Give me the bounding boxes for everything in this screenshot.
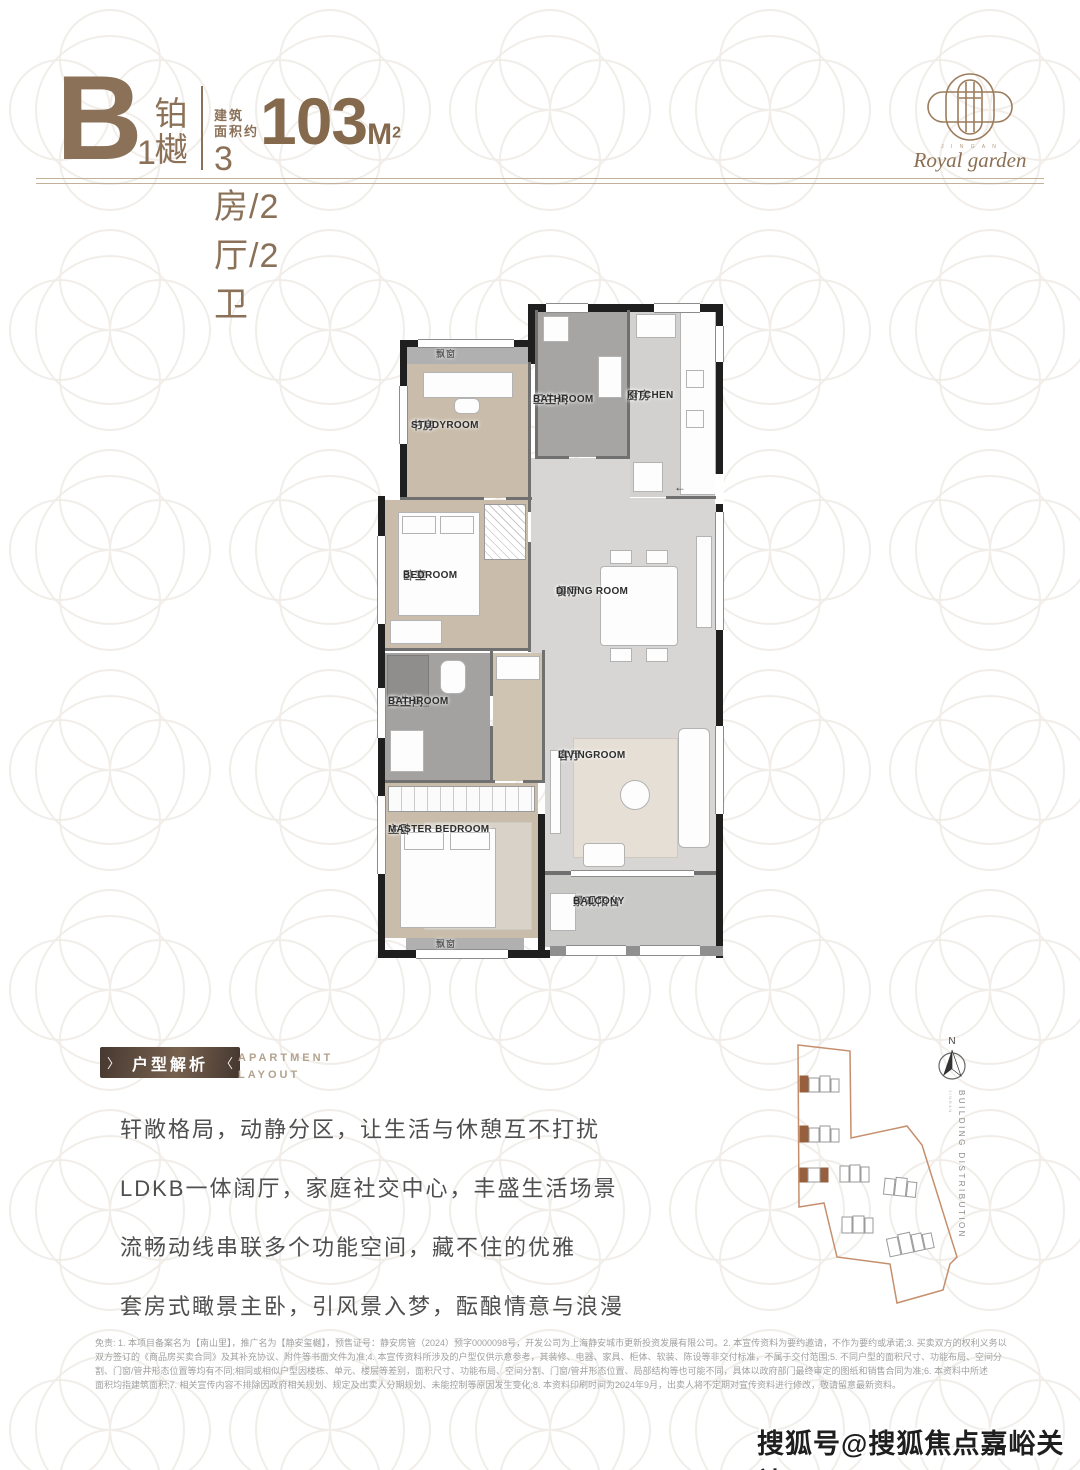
disclaimer: 免责: 1. 本项目备案名为【南山里】，推广名为【静安玺樾】，预售证号：静安房管… [95,1336,1007,1392]
wall-segment [538,814,545,954]
window [418,339,514,348]
corridor-cabinet [496,656,540,680]
brand-logo: J I N G A N Royal garden [880,68,1060,176]
bedroom-wardrobe [484,504,526,560]
wall-segment [627,310,630,458]
fridge [633,462,663,492]
section-badge: 〉 户型解析 〈 [100,1047,240,1078]
unit-type-name-char2: 樾 [153,132,189,168]
window [377,796,386,874]
window [377,688,386,738]
coffee-table [620,780,650,810]
area-caption-line1: 建筑 [214,108,260,124]
area-figure: 103M2 [260,90,401,153]
building-cluster [883,1176,917,1197]
study-bay-window [407,346,528,364]
wall-segment [490,726,493,783]
wall-segment [385,780,495,783]
stove-icon [686,370,704,388]
disclaimer-line: 面积均指建筑面积;7. 相关宣传内容不排除因政府相关规划、规定及出卖人分期规划、… [95,1378,1007,1392]
unit-type-name: 铂 樾 [153,96,189,169]
window [715,726,724,814]
wall-segment [528,362,531,500]
study-desk [423,372,513,398]
window [640,945,700,956]
paragraph-line: LDKB一体阔厅，家庭社交中心，丰盛生活场景 [120,1171,624,1203]
wall-segment [385,648,531,651]
sofa [678,728,710,848]
section-subtitle: APARTMENT LAYOUT [238,1050,333,1083]
map-axis-label: BUILDING DISTRIBUTION [957,1090,966,1239]
disclaimer-line: 双方签订的《商品房买卖合同》及其补充协议、附件等书面文件为准;4. 本宣传资料所… [95,1350,1007,1364]
building-cluster [840,1165,869,1182]
building-distribution-map: N BUILDING DISTRIBUTION JINGAN [772,1032,1012,1322]
wall-segment [535,310,538,458]
wall-segment [694,871,716,875]
kitchen-counter [680,311,716,495]
wall-segment [666,496,716,499]
window [377,536,386,624]
logo-quatrefoil-horizontal [928,92,1012,122]
north-arrow-icon: N [939,1036,965,1079]
area-caption: 建筑 面积约 [214,108,260,141]
wall-segment [490,650,493,696]
dining-chair [646,648,668,662]
paragraph-line: 套房式瞰景主卧，引风景入梦，酝酿情意与浪漫 [120,1289,624,1321]
logo-script-text: Royal garden [913,148,1027,172]
sideboard [696,536,712,628]
badge-chevron-left-icon: 〉 [107,1053,120,1072]
room-spec: 3房/2厅/2卫 [214,140,279,326]
wall-segment [528,500,531,512]
entry-arrow-icon: ← [674,480,686,494]
logo-window-icon [958,80,982,134]
window [566,945,626,956]
window [715,512,724,630]
wall-segment [400,497,484,500]
hallway-floor [530,458,630,498]
north-label: N [948,1036,955,1047]
sliding-door [571,870,694,877]
wall-segment [545,871,571,875]
badge-chevron-right-icon: 〈 [220,1053,233,1072]
bed-pillow [440,516,474,534]
building-cluster [842,1216,873,1233]
building-cluster [800,1076,839,1092]
section-subtitle-line2: LAYOUT [238,1067,333,1084]
floor-plan: ← 飘窗 书房STUDYROOM 卫生间BATHROOM 厨房KITCHEN 卧… [378,298,723,958]
window [546,303,588,313]
window [416,949,508,959]
dining-chair [610,550,632,564]
window [654,303,700,313]
wall-segment [528,542,531,652]
bed-pillow [402,516,436,534]
entry-door-opening [715,474,724,504]
map-axis-sublabel: JINGAN [948,1090,953,1114]
building-cluster [800,1168,828,1182]
bath1-vanity [598,356,622,398]
bedroom-desk [390,620,442,644]
bath2-sink [390,730,424,772]
disclaimer-line: 免责: 1. 本项目备案名为【南山里】，推广名为【静安玺樾】，预售证号：静安房管… [95,1336,1007,1350]
wall-segment [716,304,723,958]
area-unit: M [367,118,392,151]
wall-segment [542,650,545,783]
header-rule [36,178,1044,184]
area-unit-sup: 2 [392,125,401,142]
logo-quatrefoil-vertical [946,74,994,140]
dining-chair [610,648,632,662]
dining-chair [646,550,668,564]
paragraph-line: 轩敞格局，动静分区，让生活与休憩互不打扰 [120,1112,624,1144]
window [399,386,408,444]
building-cluster [886,1228,934,1257]
section-badge-title: 户型解析 [132,1051,208,1075]
wall-segment [535,456,569,459]
watermark: 搜狐号@搜狐焦点嘉峪关站 [757,1422,1080,1470]
kitchen-sink [636,314,676,338]
paragraph-line: 流畅动线串联多个功能空间，藏不住的优雅 [120,1230,624,1262]
dining-table [600,566,678,646]
window [715,326,724,362]
header-divider [201,86,203,170]
washer [543,316,569,342]
description-paragraph: 轩敞格局，动静分区，让生活与休憩互不打扰 LDKB一体阔厅，家庭社交中心，丰盛生… [120,1112,624,1348]
building-cluster [800,1126,839,1142]
disclaimer-line: 割、门窗/管井形态位置等均有不同;相同或相似户型因楼栋、单元、楼层等差别，面积尺… [95,1364,1007,1378]
wall-segment [596,456,630,459]
poster-page: B 1 铂 樾 建筑 面积约 103M2 3房/2厅/2卫 [0,0,1080,1470]
section-subtitle-line1: APARTMENT [238,1050,333,1067]
toilet [440,660,466,694]
study-chair [454,398,480,414]
unit-type-letter: B [56,58,141,178]
armchair [583,843,625,867]
master-wardrobe [388,786,535,812]
unit-type-name-char1: 铂 [153,96,189,132]
stove-icon [686,410,704,428]
wall-segment [528,304,535,364]
area-caption-line2: 面积约 [214,124,260,140]
